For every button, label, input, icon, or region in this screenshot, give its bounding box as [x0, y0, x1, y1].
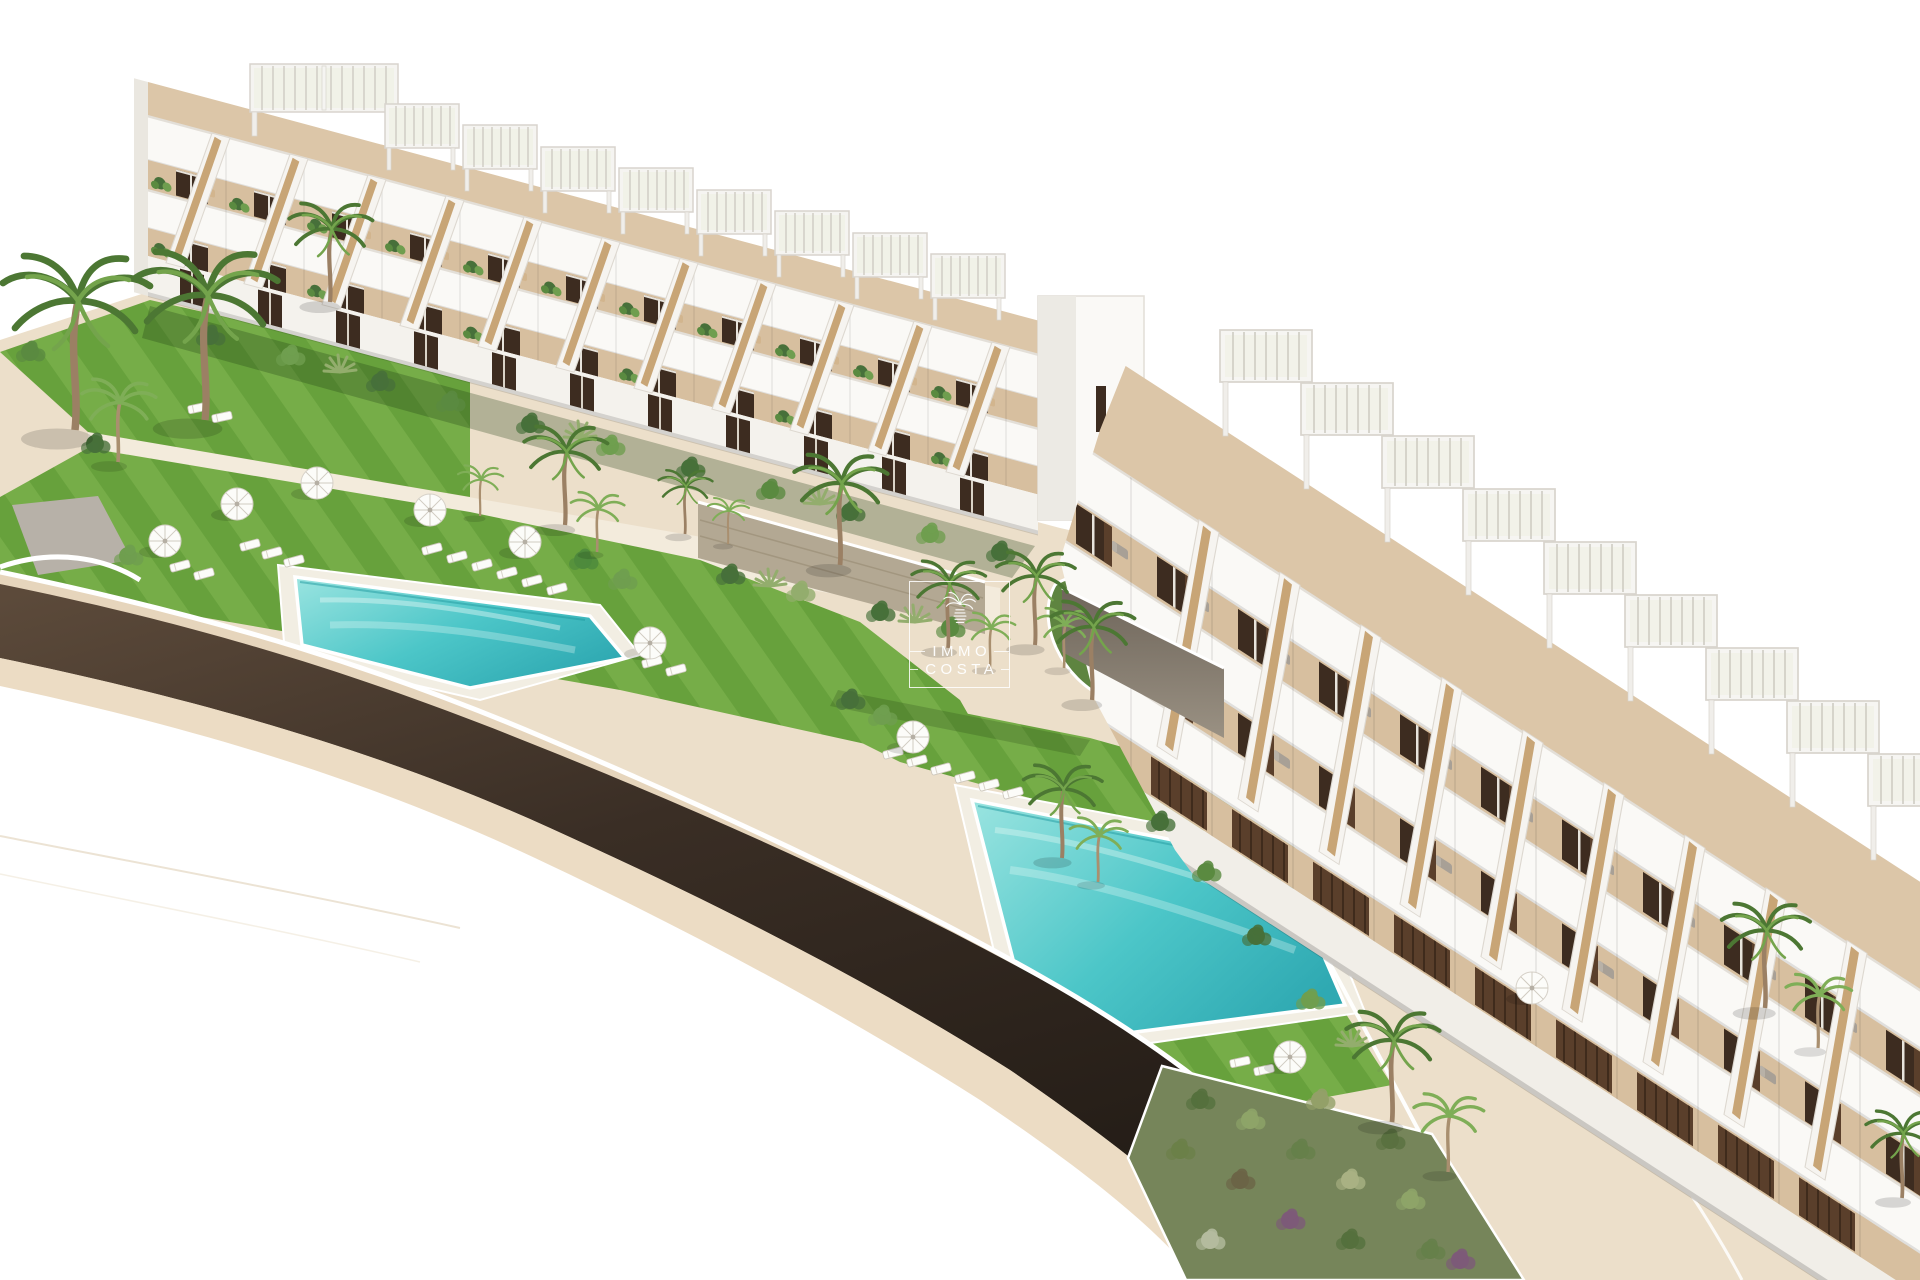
watermark-word-immo: IMMO [928, 644, 991, 659]
rooftop-pergola [1220, 330, 1312, 436]
watermark-rule [994, 651, 1009, 652]
watermark-word-costa: COSTA [921, 662, 999, 677]
aerial-render-scene: IMMO COSTA [0, 0, 1920, 1280]
watermark-rule [910, 669, 918, 670]
rooftop-pergola [1868, 754, 1920, 860]
rooftop-pergola [1382, 436, 1474, 542]
rooftop-pergola [1787, 701, 1879, 807]
watermark-row-2: COSTA [910, 662, 1009, 677]
watermark-rule [1001, 669, 1009, 670]
watermark-row-1: IMMO [910, 644, 1009, 659]
building-end-wall [134, 78, 148, 296]
rooftop-pergola [1544, 542, 1636, 648]
brand-watermark: IMMO COSTA [909, 581, 1010, 688]
rooftop-pergola [1463, 489, 1555, 595]
watermark-rule [910, 651, 925, 652]
palm-tree-logo-icon [942, 590, 978, 626]
rooftop-pergola [1301, 383, 1393, 489]
rooftop-pergola [1706, 648, 1798, 754]
rooftop-pergola [1625, 595, 1717, 701]
